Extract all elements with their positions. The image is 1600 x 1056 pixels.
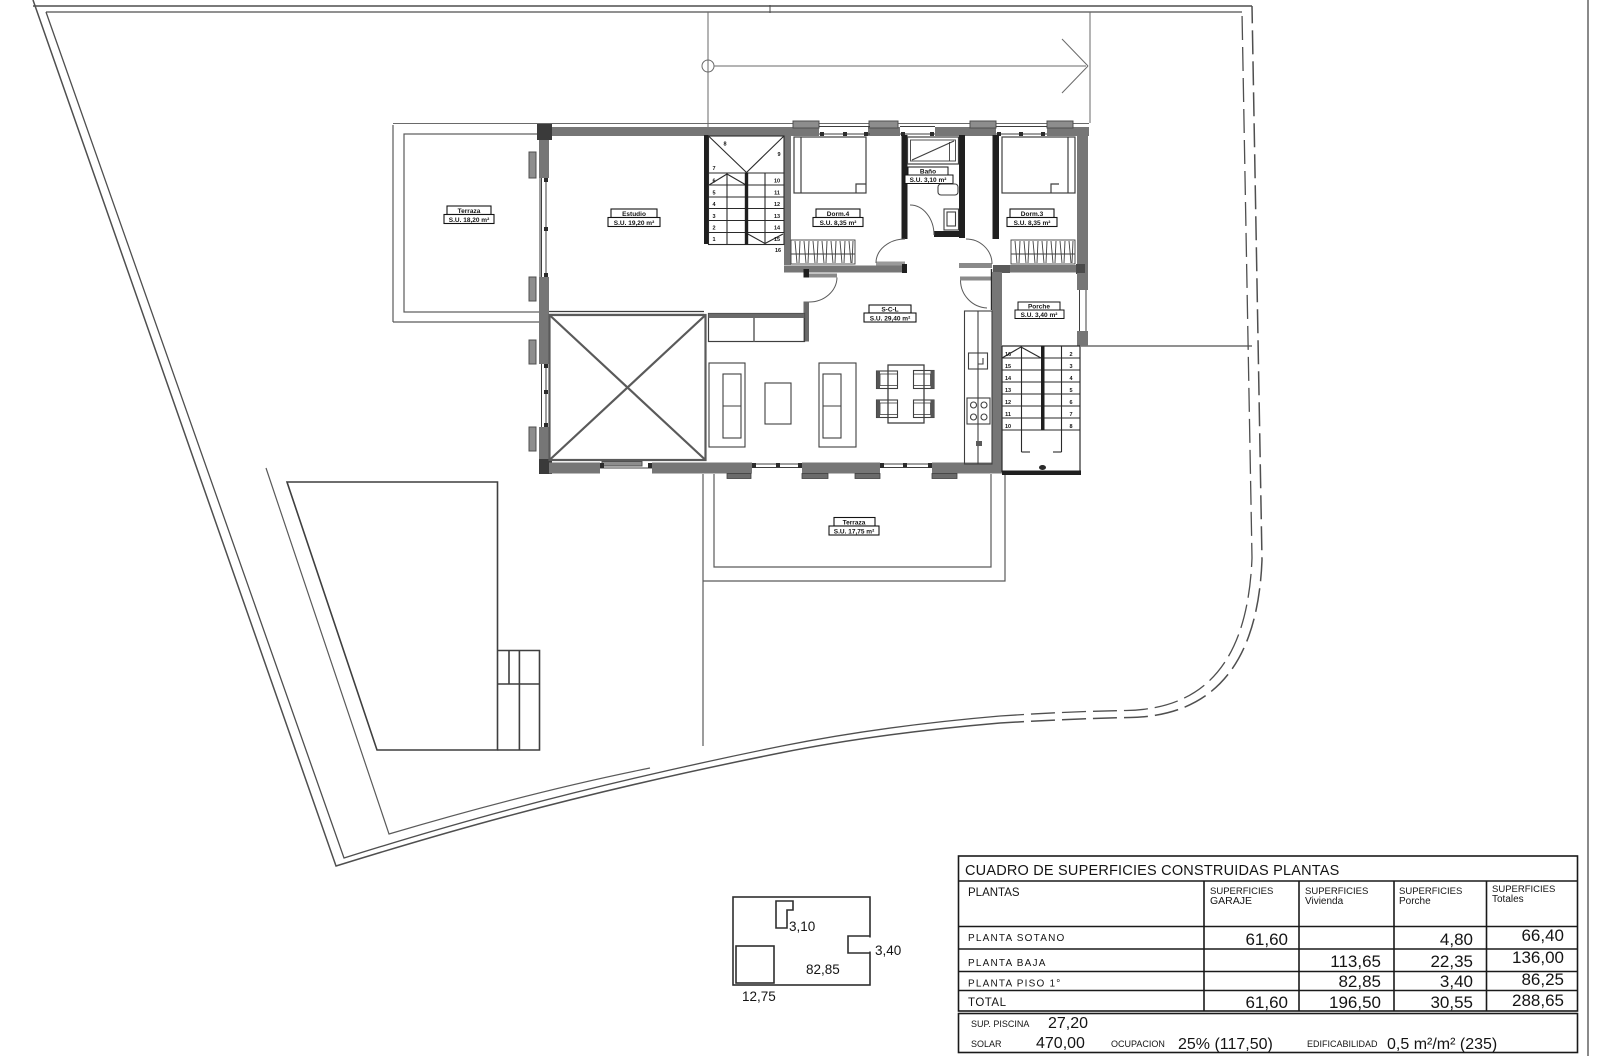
svg-text:14: 14 [774, 226, 781, 232]
svg-text:6: 6 [712, 179, 715, 185]
svg-text:SUP. PISCINA: SUP. PISCINA [971, 1019, 1029, 1029]
svg-text:OCUPACION: OCUPACION [1111, 1039, 1165, 1049]
svg-text:16: 16 [775, 248, 781, 254]
svg-text:3,10: 3,10 [789, 919, 815, 934]
svg-text:Terraza: Terraza [458, 208, 481, 215]
svg-text:PLANTAS: PLANTAS [968, 887, 1020, 899]
svg-text:Porche: Porche [1399, 896, 1431, 907]
svg-text:0,5 m²/m² (235): 0,5 m²/m² (235) [1387, 1036, 1497, 1053]
svg-text:82,85: 82,85 [1338, 972, 1381, 991]
svg-text:66,40: 66,40 [1521, 926, 1564, 945]
svg-text:5: 5 [1069, 388, 1072, 394]
svg-text:1: 1 [712, 237, 715, 243]
svg-text:12,75: 12,75 [742, 989, 776, 1004]
svg-text:8: 8 [723, 142, 726, 148]
svg-text:14: 14 [1005, 376, 1012, 382]
svg-text:S.U. 3,40 m²: S.U. 3,40 m² [1021, 312, 1059, 319]
svg-text:3: 3 [712, 214, 715, 220]
svg-text:S.U. 8,35 m²: S.U. 8,35 m² [820, 220, 858, 227]
svg-text:S.U. 18,20 m²: S.U. 18,20 m² [449, 217, 490, 224]
svg-text:288,65: 288,65 [1512, 991, 1564, 1010]
svg-text:470,00: 470,00 [1036, 1035, 1085, 1052]
svg-text:PLANTA BAJA: PLANTA BAJA [968, 958, 1047, 969]
svg-text:Vivienda: Vivienda [1305, 896, 1344, 907]
svg-text:7: 7 [1069, 412, 1072, 418]
svg-text:Baño: Baño [920, 169, 936, 176]
svg-text:S.U. 8,35 m²: S.U. 8,35 m² [1014, 220, 1052, 227]
svg-text:TOTAL: TOTAL [968, 997, 1007, 1009]
svg-text:10: 10 [1005, 424, 1011, 430]
svg-text:PLANTA PISO 1°: PLANTA PISO 1° [968, 979, 1061, 990]
svg-text:S.U. 3,10 m²: S.U. 3,10 m² [910, 177, 948, 184]
svg-text:CUADRO DE SUPERFICIES CONSTRUI: CUADRO DE SUPERFICIES CONSTRUIDAS PLANTA… [965, 863, 1340, 879]
svg-text:S.U. 17,75 m²: S.U. 17,75 m² [834, 529, 875, 536]
svg-text:12: 12 [1005, 400, 1011, 406]
svg-text:8: 8 [1069, 424, 1072, 430]
svg-text:22,35: 22,35 [1430, 952, 1473, 971]
svg-text:3,40: 3,40 [1440, 972, 1473, 991]
svg-text:Totales: Totales [1492, 894, 1524, 905]
svg-text:Estudio: Estudio [622, 211, 646, 218]
svg-text:GARAJE: GARAJE [1210, 895, 1252, 907]
svg-text:5: 5 [712, 191, 715, 197]
svg-text:Dorm.3: Dorm.3 [1021, 211, 1044, 218]
svg-text:Terraza: Terraza [843, 520, 866, 527]
svg-text:7: 7 [712, 166, 715, 172]
svg-text:2: 2 [1069, 352, 1072, 358]
svg-text:3,40: 3,40 [875, 943, 901, 958]
svg-text:12: 12 [774, 202, 780, 208]
svg-text:13: 13 [774, 214, 780, 220]
svg-text:13: 13 [1005, 388, 1011, 394]
svg-text:S.U. 19,20 m²: S.U. 19,20 m² [614, 220, 655, 227]
svg-text:PLANTA SOTANO: PLANTA SOTANO [968, 933, 1065, 944]
svg-text:6: 6 [1069, 400, 1072, 406]
svg-text:86,25: 86,25 [1521, 970, 1564, 989]
svg-text:113,65: 113,65 [1330, 952, 1381, 971]
svg-text:EDIFICABILIDAD: EDIFICABILIDAD [1307, 1039, 1378, 1049]
svg-text:16: 16 [1005, 352, 1011, 358]
svg-text:61,60: 61,60 [1245, 993, 1288, 1012]
svg-text:15: 15 [1005, 364, 1011, 370]
svg-text:82,85: 82,85 [806, 962, 840, 977]
svg-text:136,00: 136,00 [1512, 948, 1564, 967]
svg-text:15: 15 [774, 237, 780, 243]
svg-text:Porche: Porche [1028, 304, 1050, 311]
svg-text:Dorm.4: Dorm.4 [827, 211, 850, 218]
svg-text:4,80: 4,80 [1440, 930, 1473, 949]
svg-text:S-C-L: S-C-L [881, 307, 898, 314]
svg-text:196,50: 196,50 [1329, 993, 1381, 1012]
svg-text:61,60: 61,60 [1245, 930, 1288, 949]
svg-text:S.U. 29,40 m²: S.U. 29,40 m² [870, 316, 911, 323]
svg-text:11: 11 [1005, 412, 1011, 418]
svg-text:30,55: 30,55 [1430, 993, 1473, 1012]
svg-text:9: 9 [777, 152, 780, 158]
svg-text:10: 10 [774, 179, 780, 185]
svg-text:27,20: 27,20 [1048, 1015, 1088, 1032]
svg-text:SOLAR: SOLAR [971, 1039, 1002, 1049]
svg-text:3: 3 [1069, 364, 1072, 370]
svg-text:11: 11 [774, 191, 780, 197]
svg-text:25% (117,50): 25% (117,50) [1178, 1036, 1273, 1053]
svg-text:2: 2 [712, 226, 715, 232]
